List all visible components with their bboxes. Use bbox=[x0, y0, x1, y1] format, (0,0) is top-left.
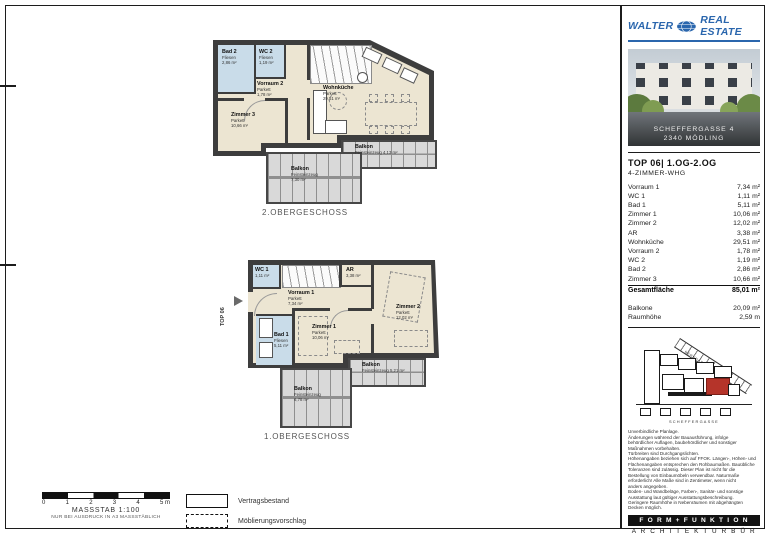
scale-note: NUR BEI AUSDRUCK IN A3 MASSSTÄBLICH bbox=[42, 515, 170, 520]
room-row-label: Raumhöhe bbox=[628, 313, 661, 322]
room-row-label: Zimmer 1 bbox=[628, 210, 657, 219]
title-block: WALTER REAL ESTATE SCHEFFERGAS bbox=[628, 14, 760, 534]
site-building bbox=[660, 408, 671, 416]
room-row-value: 2,59 m bbox=[739, 313, 760, 322]
legend-item: Vertragsbestand bbox=[186, 494, 306, 508]
wall-segment bbox=[371, 265, 374, 309]
room-row: WC 1 1,11 m² bbox=[628, 192, 760, 201]
room-floor: Feinsteinzeug bbox=[355, 150, 382, 155]
stairs-1og bbox=[282, 265, 341, 288]
room-row: WC 2 1,19 m² bbox=[628, 256, 760, 265]
architect-block: F O R M + F U N K T I O N A R C H I T E … bbox=[628, 515, 760, 534]
scale-tick-label: 4 bbox=[136, 500, 139, 506]
rule bbox=[628, 152, 760, 153]
plan-sheet: Bad 2Fliesen2,86 m² WC 2Fliesen1,19 m² V… bbox=[0, 0, 770, 534]
room-row-label: Balkone bbox=[628, 304, 653, 313]
room-area: 5,11 m² bbox=[274, 343, 288, 348]
furniture-chair bbox=[369, 94, 378, 102]
wall-segment bbox=[341, 285, 371, 287]
room-row-value: 10,06 m² bbox=[733, 210, 760, 219]
furniture-desk bbox=[334, 340, 360, 354]
address-line1: SCHEFFERGASSE 4 bbox=[628, 125, 760, 134]
site-building bbox=[700, 408, 711, 416]
disclaimer-line: Decken möglich. bbox=[628, 505, 760, 510]
site-building bbox=[640, 408, 651, 416]
room-area: 10,06 m² bbox=[312, 335, 329, 340]
wall-segment bbox=[339, 265, 342, 287]
room-row-value: 7,34 m² bbox=[737, 183, 760, 192]
caption-1og: 1.OBERGESCHOSS bbox=[264, 432, 350, 441]
room-row: Balkone 20,09 m² bbox=[628, 304, 760, 313]
room-area: 4,13 m² bbox=[383, 150, 398, 155]
architect-logo: F O R M + F U N K T I O N bbox=[628, 515, 760, 526]
unit-title: TOP 06| 1.OG-2.OG bbox=[628, 158, 760, 168]
room-row-label: Bad 2 bbox=[628, 265, 646, 274]
room-area: 1,19 m² bbox=[259, 60, 274, 65]
site-street-edge bbox=[636, 404, 752, 405]
site-building bbox=[720, 408, 731, 416]
room-floor: Feinsteinzeug bbox=[362, 368, 389, 373]
room-row-value: 1,19 m² bbox=[737, 256, 760, 265]
floorplan-1og: WC 11,11 m² Vorraum 1Parkett7,34 m² AR3,… bbox=[236, 252, 460, 430]
scale-tick-label: 5 m bbox=[160, 500, 170, 506]
site-building bbox=[660, 354, 678, 366]
scale-tick-label: 3 bbox=[113, 500, 116, 506]
room-area: 1,78 m² bbox=[257, 92, 272, 97]
room-row-label: WC 2 bbox=[628, 256, 645, 265]
room-row-label: Zimmer 2 bbox=[628, 219, 657, 228]
room-row-value: 1,78 m² bbox=[737, 247, 760, 256]
room-area: 7,30 m² bbox=[291, 177, 306, 182]
room-row-label: Wohnküche bbox=[628, 238, 664, 247]
room-area: 7,34 m² bbox=[288, 301, 303, 306]
room-area: 29,51 m² bbox=[323, 96, 340, 101]
room-area: 6,78 m² bbox=[294, 397, 309, 402]
site-building bbox=[680, 408, 691, 416]
room-row: Vorraum 1 7,34 m² bbox=[628, 183, 760, 192]
room-row: Zimmer 1 10,06 m² bbox=[628, 210, 760, 219]
building-photo: SCHEFFERGASSE 4 2340 MÖDLING bbox=[628, 49, 760, 146]
furniture-dining-table bbox=[365, 102, 417, 126]
room-area: 10,66 m² bbox=[231, 123, 248, 128]
room-row: Zimmer 3 10,66 m² bbox=[628, 275, 760, 284]
brand-name-left: WALTER bbox=[628, 20, 673, 32]
property-address: SCHEFFERGASSE 4 2340 MÖDLING bbox=[628, 125, 760, 143]
room-area: 3,38 m² bbox=[346, 273, 361, 278]
site-building bbox=[678, 358, 696, 370]
site-highlight-unit bbox=[706, 378, 730, 395]
furniture-wardrobe bbox=[394, 330, 428, 347]
room-row-value: 20,09 m² bbox=[733, 304, 760, 313]
titleblock-divider bbox=[620, 5, 622, 529]
bath-fixture bbox=[259, 342, 273, 358]
room-area: 2,86 m² bbox=[222, 60, 237, 65]
site-street-bottom-label: SCHEFFERGASSE bbox=[628, 419, 760, 424]
room-row-label: Bad 1 bbox=[628, 201, 646, 210]
room-row-label: Zimmer 3 bbox=[628, 275, 657, 284]
disclaimer-line: Boden- und Wandbeläge, Farben-, Sanitär-… bbox=[628, 489, 760, 494]
globe-icon bbox=[676, 19, 697, 34]
fold-mark bbox=[0, 264, 16, 266]
wall-segment bbox=[307, 98, 310, 140]
room-row: Wohnküche 29,51 m² bbox=[628, 238, 760, 247]
floorplan-2og: Bad 2Fliesen2,86 m² WC 2Fliesen1,19 m² V… bbox=[213, 40, 461, 210]
scale-bar: 0 1 2 3 4 5 m MASSSTAB 1:100 NUR BEI AUS… bbox=[42, 492, 170, 520]
total-value: 85,01 m² bbox=[732, 286, 760, 296]
room-row: Vorraum 2 1,78 m² bbox=[628, 247, 760, 256]
site-building bbox=[644, 350, 660, 404]
total-row: Gesamtfläche 85,01 m² bbox=[628, 285, 760, 296]
scale-tick-label: 1 bbox=[66, 500, 69, 506]
entrance-top06-label: TOP 06 bbox=[220, 307, 226, 326]
scale-strip bbox=[42, 492, 170, 499]
room-row-value: 3,38 m² bbox=[737, 229, 760, 238]
wall-segment bbox=[294, 308, 330, 311]
room-row-label: WC 1 bbox=[628, 192, 645, 201]
room-row: Zimmer 2 12,02 m² bbox=[628, 219, 760, 228]
room-row: Raumhöhe 2,59 m bbox=[628, 313, 760, 322]
furniture-chair bbox=[385, 94, 394, 102]
site-building bbox=[696, 362, 714, 374]
furniture-chair bbox=[385, 126, 394, 134]
site-building bbox=[684, 378, 704, 393]
disclaimer: Unverbindliche Planlage. Änderungen währ… bbox=[628, 429, 760, 511]
room-row-value: 10,66 m² bbox=[733, 275, 760, 284]
brand-logo: WALTER REAL ESTATE bbox=[628, 14, 760, 42]
entrance-opening bbox=[248, 292, 254, 312]
room-table: Vorraum 1 7,34 m² WC 1 1,11 m² Bad 1 5,1… bbox=[628, 183, 760, 284]
legend-item: Möblierungsvorschlag bbox=[186, 514, 306, 528]
counter-island bbox=[325, 120, 347, 134]
room-row-value: 29,51 m² bbox=[733, 238, 760, 247]
caption-2og: 2.OBERGESCHOSS bbox=[262, 208, 348, 217]
wall-segment bbox=[348, 308, 372, 311]
bath-fixture bbox=[259, 318, 273, 338]
wall-segment bbox=[371, 324, 374, 353]
room-area: 1,11 m² bbox=[255, 273, 269, 278]
unit-subtitle: 4-ZIMMER-WHG bbox=[628, 170, 760, 177]
furniture-chair bbox=[401, 94, 410, 102]
furniture-chair bbox=[401, 126, 410, 134]
room-row-value: 1,11 m² bbox=[737, 192, 760, 201]
room-area: 5,21 m² bbox=[390, 368, 405, 373]
scale-ticks: 0 1 2 3 4 5 m bbox=[42, 500, 170, 506]
room-row-label: Vorraum 2 bbox=[628, 247, 659, 256]
site-plan: BERNHARDGASSE SCHEFFERGASSE bbox=[628, 336, 760, 424]
room-row-value: 2,86 m² bbox=[737, 265, 760, 274]
legend-label: Möblierungsvorschlag bbox=[238, 518, 306, 525]
brand-underline bbox=[628, 40, 760, 42]
address-line2: 2340 MÖDLING bbox=[628, 134, 760, 143]
legend-swatch bbox=[186, 494, 228, 508]
wall-segment bbox=[265, 98, 287, 101]
legend-label: Vertragsbestand bbox=[238, 498, 289, 505]
scale-caption: MASSSTAB 1:100 bbox=[42, 507, 170, 514]
total-label: Gesamtfläche bbox=[628, 286, 674, 296]
extras-table: Balkone 20,09 m² Raumhöhe 2,59 m bbox=[628, 304, 760, 322]
site-building bbox=[728, 384, 740, 396]
legend-swatch bbox=[186, 514, 228, 528]
site-building bbox=[714, 366, 732, 378]
scale-tick-label: 2 bbox=[89, 500, 92, 506]
room-row-label: AR bbox=[628, 229, 637, 238]
brand-name-right: REAL ESTATE bbox=[700, 14, 760, 38]
room-row: Bad 1 5,11 m² bbox=[628, 201, 760, 210]
site-building bbox=[662, 374, 684, 390]
room-row: AR 3,38 m² bbox=[628, 229, 760, 238]
room-row: Bad 2 2,86 m² bbox=[628, 265, 760, 274]
room-area: 12,02 m² bbox=[396, 315, 413, 320]
fold-mark bbox=[0, 85, 16, 87]
rule bbox=[628, 327, 760, 328]
room-row-label: Vorraum 1 bbox=[628, 183, 659, 192]
plan-legend: Vertragsbestand Möblierungsvorschlag bbox=[186, 494, 306, 534]
room-row-value: 5,11 m² bbox=[737, 201, 760, 210]
furniture-chair bbox=[369, 126, 378, 134]
architect-line1: A R C H I T E K T U R B Ü R O bbox=[628, 528, 760, 534]
room-row-value: 12,02 m² bbox=[733, 219, 760, 228]
scale-tick-label: 0 bbox=[42, 500, 45, 506]
entrance-arrow-icon bbox=[234, 296, 243, 306]
wall-segment bbox=[292, 308, 295, 363]
wall-segment bbox=[285, 98, 288, 143]
wall-segment bbox=[218, 98, 244, 101]
kitchen-sink bbox=[357, 72, 368, 83]
